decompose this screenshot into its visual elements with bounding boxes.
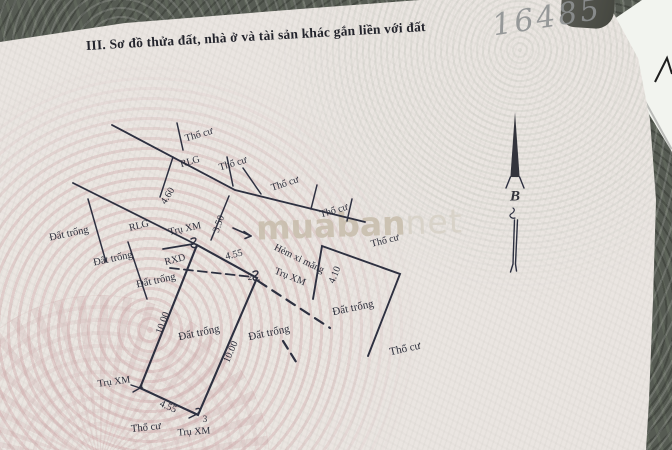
cement-post-label: Trụ XM: [177, 425, 210, 438]
north-label: B: [510, 189, 520, 206]
rxd-leader-line: [163, 244, 193, 249]
corner-number: 4: [139, 381, 144, 391]
corner-number: 2: [248, 272, 253, 282]
alley-arrow: [233, 228, 251, 239]
corner-number: 3: [203, 414, 208, 424]
photo-of-land-document: III. Sơ đồ thửa đất, nhà ở và tài sản kh…: [0, 0, 672, 450]
alley-dashed-line: [258, 281, 330, 365]
